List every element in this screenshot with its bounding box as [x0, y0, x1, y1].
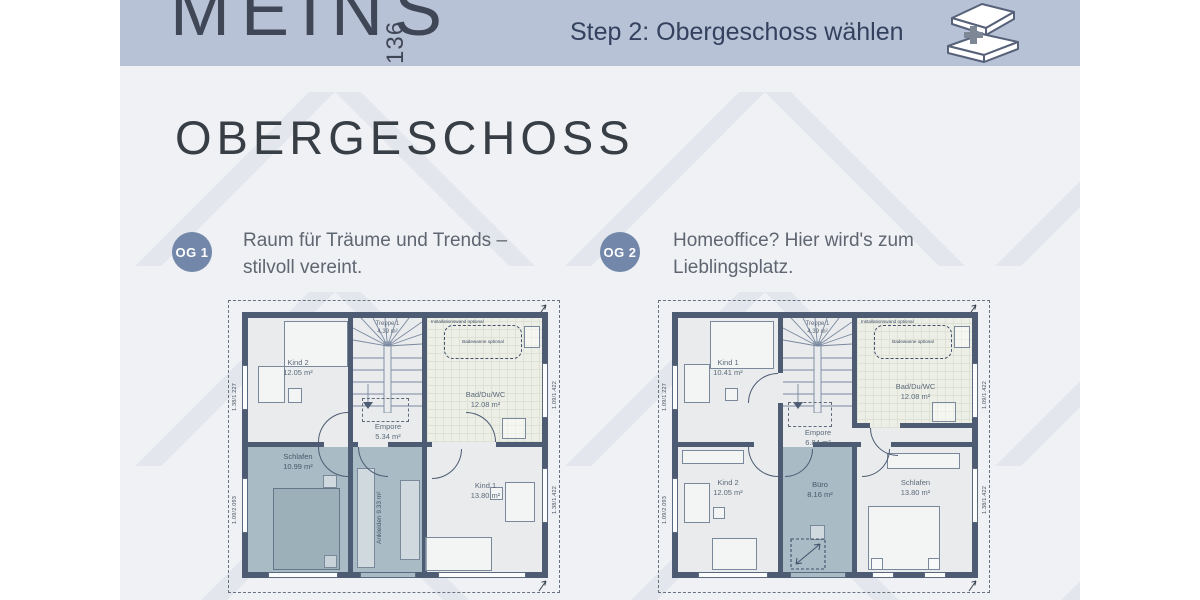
room-label-kind2: Kind 2 12.05 m² [678, 478, 778, 498]
installationswand-note: Installationswand optional [861, 319, 917, 324]
room-label-schlafen: Schlafen 10.99 m² [248, 452, 348, 472]
wall [852, 447, 857, 572]
room-name: Kind 1 [717, 358, 738, 367]
furniture-nightstand [324, 555, 337, 568]
room-area: 10.41 m² [713, 368, 743, 377]
section-marker-icon [967, 579, 979, 592]
room-label-empore: Empore 6.84 m² [778, 428, 858, 448]
og1-description-line1: Raum für Träume und Trends – [243, 230, 507, 251]
room-area: 12.08 m² [901, 392, 931, 401]
furniture-toilet [524, 326, 540, 348]
window [242, 365, 248, 410]
furniture-pillow [871, 558, 883, 570]
room-area: 13.80 m² [471, 491, 501, 500]
furniture-toilet [954, 326, 970, 348]
window-dimension: 1.09/1.422 [552, 363, 558, 427]
floorplan-og1-card[interactable]: 1.38/1.227 1.09/2.093 1.09/1.422 1.38/1.… [228, 300, 560, 593]
room-label-treppe: Treppe 1 4.39 m² [783, 321, 852, 337]
room-label-kind1: Kind 1 13.80 m² [429, 481, 542, 501]
room-name: Bad/Du/WC [896, 382, 936, 391]
installationswand-note: Installationswand optional [431, 319, 487, 324]
room-area: 6.84 m² [805, 438, 830, 447]
furniture-table [288, 388, 302, 403]
furniture-wardrobe [357, 468, 375, 568]
room-area: 9.33 m² [376, 492, 383, 514]
room-area: 12.05 m² [713, 488, 743, 497]
room-name: Empore [375, 422, 401, 431]
brand-logo: MEINS [170, 0, 453, 52]
room-name: Treppe 1 [376, 321, 400, 327]
wall [248, 442, 324, 447]
window [790, 572, 846, 578]
floorplan-interior: Installationswand optional Badewanne opt… [678, 318, 972, 572]
empore-dashed-zone [362, 398, 409, 422]
room-area: 4.39 m² [807, 329, 827, 335]
wall [778, 447, 783, 572]
configurator-panel: MEINS 136 Step 2: Obergeschoss wählen OB… [120, 0, 1080, 600]
room-label-bad: Bad/Du/WC 12.08 m² [859, 382, 972, 402]
room-name: Kind 2 [717, 478, 738, 487]
furniture-desk-flex-zone [790, 538, 826, 570]
main-area: OBERGESCHOSS OG 1 Raum für Träume und Tr… [120, 66, 1080, 600]
window-dimension: 1.38/1.227 [232, 365, 238, 429]
window [924, 572, 946, 578]
window-dimension: 1.09/1.227 [662, 365, 668, 429]
brand-logo-number: 136 [382, 2, 410, 64]
window [972, 363, 978, 418]
room-label-kind2: Kind 2 12.05 m² [248, 358, 348, 378]
bathtub-optional: Badewanne optional [444, 325, 522, 359]
og2-description-line2: Lieblingsplatz. [673, 257, 793, 278]
room-name: Schlafen [901, 478, 930, 487]
room-name: Ankleiden [376, 516, 383, 545]
window [360, 572, 416, 578]
og1-description: Raum für Träume und Trends – stilvoll ve… [243, 228, 507, 281]
room-name: Empore [805, 428, 831, 437]
og1-badge: OG 1 [172, 232, 212, 272]
wall [857, 423, 870, 428]
room-area: 8.16 m² [807, 490, 832, 499]
window [438, 572, 526, 578]
room-name: Kind 1 [475, 481, 496, 490]
bathtub-optional: Badewanne optional [874, 325, 952, 359]
room-area: 4.39 m² [377, 329, 397, 335]
section-marker-icon [537, 579, 549, 592]
furniture-table [725, 388, 738, 401]
furniture-pillow [928, 558, 940, 570]
og2-description-line1: Homeoffice? Hier wird's zum [673, 230, 914, 251]
og1-description-line2: stilvoll vereint. [243, 257, 362, 278]
door-arc [748, 447, 778, 477]
empore-dashed-zone [788, 402, 832, 427]
step-label: Step 2: Obergeschoss wählen [570, 18, 904, 47]
furniture-nightstand [323, 475, 337, 488]
room-label-schlafen: Schlafen 13.80 m² [859, 478, 972, 498]
room-area: 12.05 m² [283, 368, 313, 377]
room-label-buero: Büro 8.16 m² [783, 480, 857, 500]
window [542, 363, 548, 418]
room-area: 5.34 m² [375, 432, 400, 441]
furniture-bed [712, 538, 757, 570]
page-title: OBERGESCHOSS [175, 110, 635, 165]
window [972, 468, 978, 523]
wall [891, 442, 972, 447]
window [542, 468, 548, 523]
furniture-table [713, 507, 725, 519]
door-arc [862, 449, 890, 477]
house-outline: Installationswand optional Badewanne opt… [672, 312, 978, 578]
furniture-wardrobe [400, 480, 420, 560]
window [268, 572, 338, 578]
window [698, 572, 768, 578]
room-label-bad: Bad/Du/WC 12.08 m² [429, 390, 542, 410]
furniture-sink [932, 402, 956, 422]
window [672, 478, 678, 533]
door-arc [748, 373, 778, 403]
og2-badge: OG 2 [600, 232, 640, 272]
header-bar: MEINS 136 Step 2: Obergeschoss wählen [120, 0, 1080, 66]
door-arc [318, 412, 348, 442]
floorplan-interior: Installationswand optional Badewanne opt… [248, 318, 542, 572]
room-name: Kind 2 [287, 358, 308, 367]
window-dimension: 1.09/1.422 [982, 363, 988, 427]
room-label-empore: Empore 5.34 m² [353, 422, 423, 442]
room-name: Bad/Du/WC [466, 390, 506, 399]
floorplan-og2-card[interactable]: 1.09/1.227 1.09/2.093 1.09/1.422 1.38/1.… [658, 300, 990, 593]
app-window: MEINS 136 Step 2: Obergeschoss wählen OB… [0, 0, 1200, 600]
furniture-bed [425, 537, 492, 571]
window-dimension: 1.38/1.422 [552, 468, 558, 532]
window [242, 478, 248, 533]
wall [900, 423, 972, 428]
window-dimension: 1.38/1.422 [982, 468, 988, 532]
window-dimension: 1.09/2.093 [232, 478, 238, 542]
house-outline: Installationswand optional Badewanne opt… [242, 312, 548, 578]
furniture-sink [502, 418, 526, 439]
window-dimension: 1.09/2.093 [662, 478, 668, 542]
room-area: 10.99 m² [283, 462, 313, 471]
window [672, 365, 678, 410]
room-name: Treppe 1 [806, 321, 830, 327]
room-area: 13.80 m² [901, 488, 931, 497]
room-name: Büro [812, 480, 828, 489]
wall [496, 442, 542, 447]
door-arc [432, 449, 462, 479]
wall [852, 318, 857, 428]
room-label-treppe: Treppe 1 4.39 m² [353, 321, 422, 337]
wall [678, 442, 754, 447]
room-area: 12.08 m² [471, 400, 501, 409]
room-name: Schlafen [283, 452, 312, 461]
wall [348, 447, 353, 572]
room-label-ankleiden: Ankleiden 9.33 m² [376, 468, 398, 568]
add-floor-icon [938, 0, 1024, 66]
og2-description: Homeoffice? Hier wird's zum Lieblingspla… [673, 228, 914, 281]
window [872, 572, 894, 578]
furniture-sideboard [682, 450, 744, 464]
room-label-kind1: Kind 1 10.41 m² [678, 358, 778, 378]
